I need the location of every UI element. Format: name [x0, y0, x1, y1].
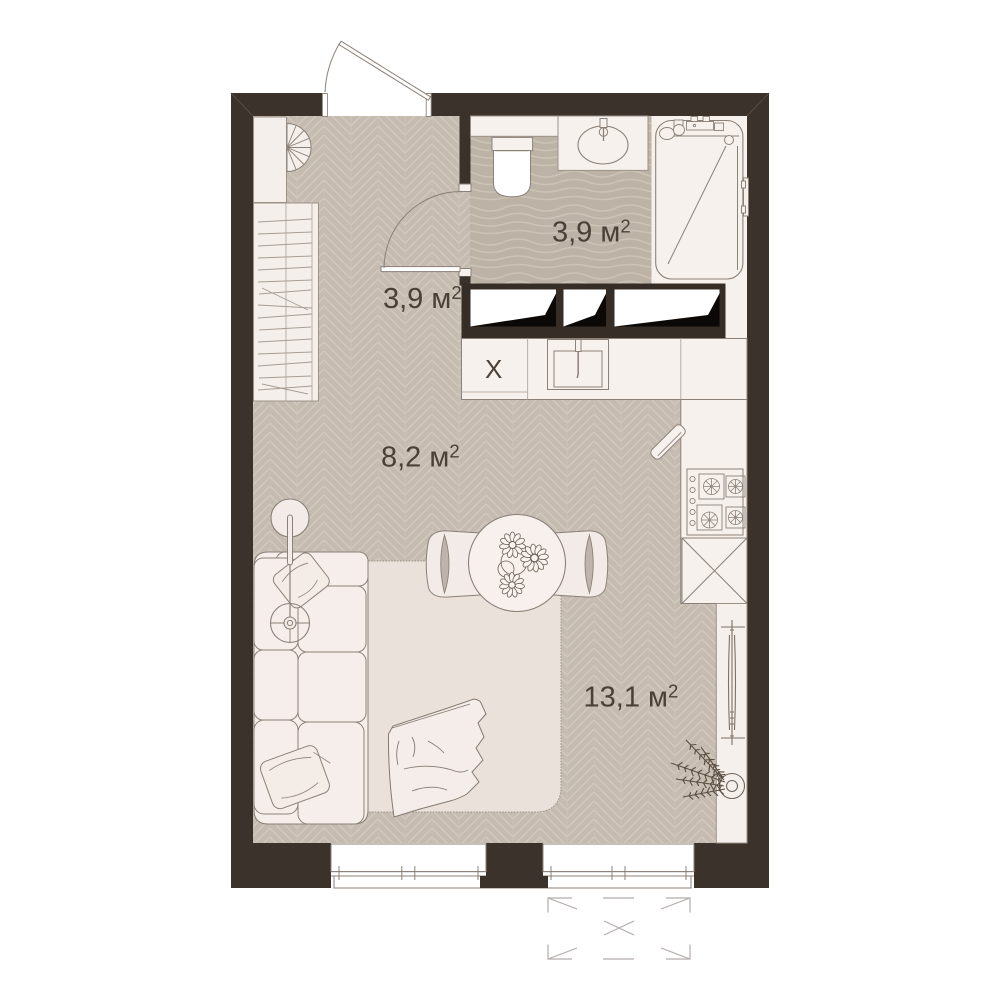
svg-text:X: X	[485, 354, 502, 384]
svg-text:3,9 м2: 3,9 м2	[383, 282, 462, 315]
svg-text:13,1 м2: 13,1 м2	[584, 681, 679, 714]
svg-text:8,2 м2: 8,2 м2	[381, 441, 460, 474]
svg-text:3,9 м2: 3,9 м2	[552, 216, 631, 249]
